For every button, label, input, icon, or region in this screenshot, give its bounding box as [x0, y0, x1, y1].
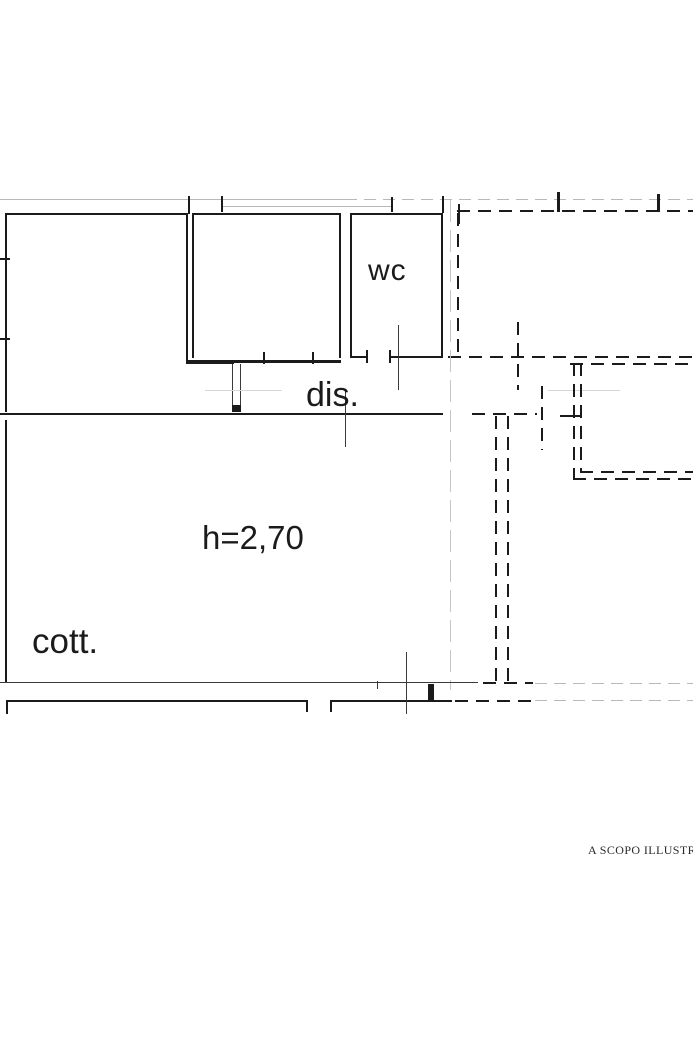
section-tick-wc-wall: [398, 325, 399, 390]
dashed-terrace-left-inner: [580, 363, 582, 473]
section-tick-top-3: [391, 197, 393, 212]
wall-tick-left-1: [0, 258, 10, 260]
faint-guide-2: [548, 390, 620, 391]
wall-tick-right-corner: [560, 415, 580, 417]
wc-door-jamb-1: [366, 350, 368, 363]
disclaimer-text: A SCOPO ILLUSTRAT: [588, 843, 693, 858]
guide-bottom-dashed-1: [535, 683, 693, 684]
section-tick-top-6: [557, 192, 560, 212]
window-sill-guide-top: [221, 206, 391, 207]
door-jamb-line-1: [232, 364, 233, 408]
dashed-wall-topright-bottom: [448, 356, 693, 358]
wall-room1-right: [186, 213, 188, 362]
wall-room2-left: [192, 213, 194, 358]
door-jamb-tick-2: [312, 352, 314, 364]
window-sill-tick-2: [306, 700, 308, 712]
section-tick-bottom-wall: [406, 652, 407, 714]
window-sill-bottom-dashed: [455, 700, 533, 702]
bottom-small-tick: [377, 681, 378, 689]
guide-bottom-dashed-2: [535, 700, 693, 701]
wall-dis-bottom: [0, 413, 443, 415]
room-label-wc: wc: [368, 256, 407, 286]
dashed-wall-topright-bottom-inner: [570, 363, 693, 365]
section-tick-top-4: [442, 196, 444, 213]
top-guide-line-dashed: [345, 199, 693, 200]
section-tick-top-1: [188, 196, 190, 214]
wall-wc-left: [350, 213, 352, 358]
faint-guide-1: [205, 390, 282, 391]
room-label-dis: dis.: [306, 378, 359, 412]
bottom-jamb-block: [428, 684, 434, 701]
top-guide-line-solid: [0, 199, 345, 200]
center-axis-line: [450, 200, 451, 690]
dashed-wall-topright-top: [457, 210, 693, 212]
dashed-wall-topright-left: [457, 213, 459, 358]
door-jamb-line-2: [240, 364, 241, 408]
wall-cott-bottom-dashed: [483, 682, 533, 684]
dashed-tick-2: [541, 386, 543, 450]
section-tick-top-2: [221, 196, 223, 212]
wall-dis-top-left: [186, 361, 234, 364]
height-annotation: h=2,70: [202, 521, 304, 554]
wall-room2-top: [192, 213, 341, 215]
dashed-wall-vertical-inner: [507, 416, 509, 683]
wall-wc-right: [441, 213, 443, 358]
wall-tick-left-2: [0, 338, 10, 340]
wall-room1-top: [5, 213, 188, 215]
wall-dis-bottom-dashed: [472, 413, 537, 415]
floor-plan-canvas: wc dis. h=2,70 cott. A SCOPO ILLUSTRAT: [0, 0, 693, 1040]
wall-wc-top: [350, 213, 443, 215]
dashed-terrace-left-outer: [573, 363, 575, 478]
wall-cott-left: [5, 420, 7, 682]
window-sill-bottom-1: [6, 700, 308, 702]
room-label-cott: cott.: [32, 624, 98, 659]
wall-room2-right: [339, 213, 341, 358]
dashed-terrace-bottom-outer: [573, 478, 693, 480]
dashed-tick-1: [517, 322, 519, 390]
dashed-wall-vertical-outer: [495, 416, 497, 683]
door-jamb-tick-1: [263, 352, 265, 364]
door-jamb-block: [232, 405, 241, 412]
window-sill-tick-1: [6, 700, 8, 714]
dashed-terrace-bottom-inner: [580, 471, 693, 473]
wc-door-jamb-2: [389, 350, 391, 363]
wall-room1-left: [5, 213, 7, 412]
